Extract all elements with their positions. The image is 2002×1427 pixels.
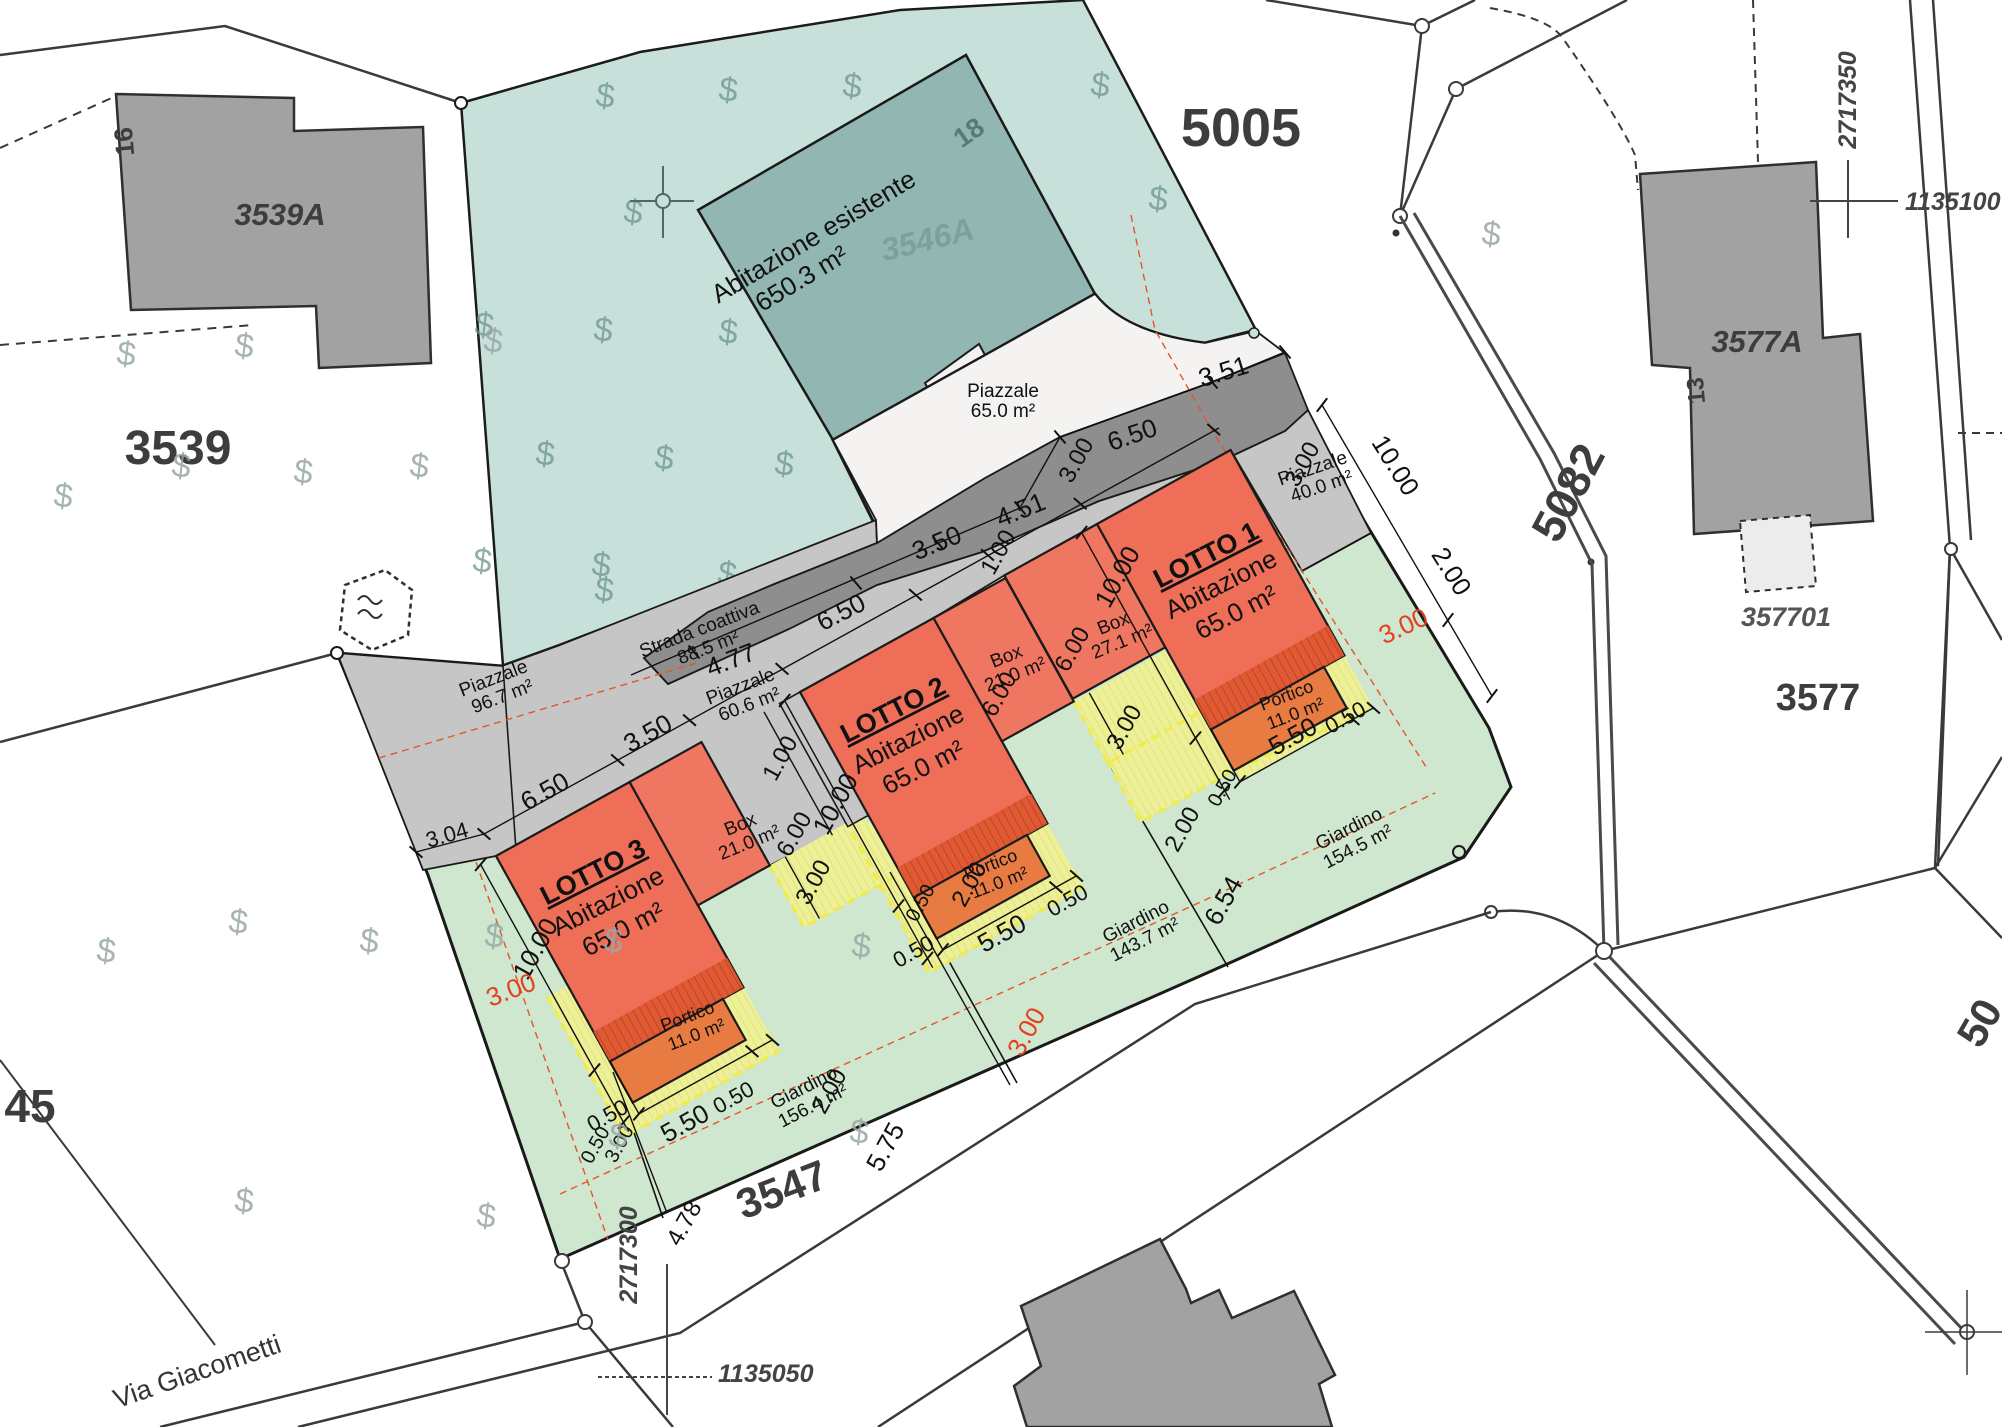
svg-text:3539A: 3539A — [234, 197, 325, 232]
svg-text:2717300: 2717300 — [615, 1206, 643, 1304]
svg-text:1135100: 1135100 — [1905, 188, 2001, 216]
svg-text:45: 45 — [4, 1080, 55, 1132]
svg-text:65.0 m²: 65.0 m² — [971, 401, 1035, 422]
svg-text:2717350: 2717350 — [1834, 51, 1862, 149]
svg-text:3577A: 3577A — [1711, 324, 1802, 359]
svg-text:357701: 357701 — [1741, 602, 1831, 632]
svg-text:Piazzale: Piazzale — [967, 381, 1039, 402]
svg-text:1135050: 1135050 — [718, 1360, 814, 1388]
svg-text:5005: 5005 — [1181, 98, 1301, 158]
svg-text:13: 13 — [1682, 376, 1711, 405]
svg-text:3577: 3577 — [1776, 677, 1861, 719]
svg-text:16: 16 — [108, 126, 140, 157]
